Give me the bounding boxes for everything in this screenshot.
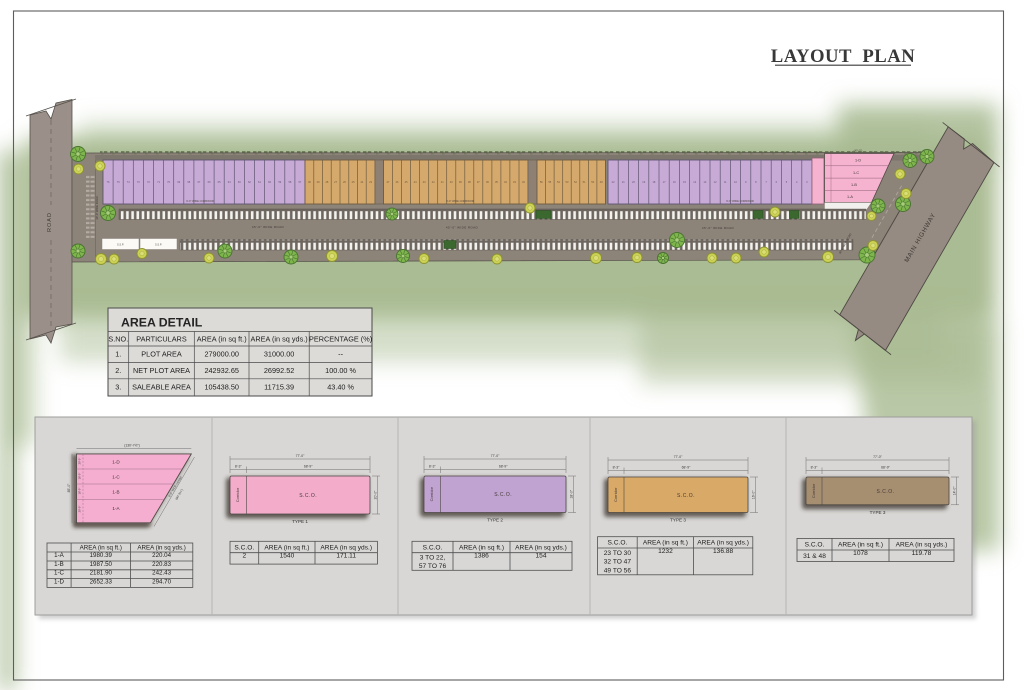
svg-text:--: -- (338, 350, 343, 359)
svg-text:2: 2 (242, 553, 246, 560)
svg-text:1-B: 1-B (112, 490, 119, 495)
svg-text:294.70: 294.70 (152, 578, 171, 585)
svg-text:S.C.O.: S.C.O. (608, 540, 628, 547)
svg-text:8'-3": 8'-3" (811, 466, 819, 470)
svg-text:14'-0": 14'-0" (953, 486, 957, 495)
svg-text:20'-0": 20'-0" (374, 490, 378, 499)
svg-text:S.C.O.: S.C.O. (677, 493, 695, 499)
svg-text:9'-0" WIDE CORRIDOR: 9'-0" WIDE CORRIDOR (186, 199, 214, 203)
svg-text:S.NO.: S.NO. (108, 335, 128, 344)
svg-text:Corridor: Corridor (811, 483, 816, 498)
svg-text:136.88: 136.88 (713, 548, 734, 555)
svg-text:20'-0": 20'-0" (78, 458, 82, 465)
svg-text:242.43: 242.43 (152, 570, 171, 577)
svg-text:16'-0": 16'-0" (78, 488, 82, 495)
svg-text:2181.90: 2181.90 (90, 570, 113, 577)
svg-text:1-A: 1-A (54, 552, 65, 559)
svg-text:1-C: 1-C (54, 570, 65, 577)
svg-text:77'-0": 77'-0" (296, 454, 305, 458)
svg-text:45'-0" WIDE ROAD: 45'-0" WIDE ROAD (702, 226, 735, 230)
svg-text:2652.33: 2652.33 (90, 578, 113, 585)
svg-text:1540: 1540 (280, 553, 295, 560)
svg-text:11715.39: 11715.39 (264, 383, 294, 392)
svg-text:S.C.O.: S.C.O. (494, 492, 512, 498)
svg-text:AREA (in sq yds.): AREA (in sq yds.) (137, 545, 185, 552)
svg-text:1-B: 1-B (851, 183, 857, 187)
svg-text:20'-0": 20'-0" (78, 506, 82, 513)
svg-text:8'-3": 8'-3" (235, 465, 243, 469)
svg-text:S.C.O.: S.C.O. (234, 544, 254, 551)
svg-text:AREA (in sq ft.): AREA (in sq ft.) (838, 542, 883, 549)
svg-text:8'-3": 8'-3" (429, 465, 437, 469)
svg-text:NET PLOT AREA: NET PLOT AREA (133, 366, 190, 375)
svg-text:AREA (in sq yds.): AREA (in sq yds.) (697, 540, 749, 547)
svg-text:2.: 2. (115, 366, 121, 375)
svg-text:1-B: 1-B (54, 561, 64, 568)
svg-text:AREA (in sq ft.): AREA (in sq ft.) (80, 545, 122, 552)
svg-text:105438.50: 105438.50 (204, 383, 239, 392)
svg-text:1980.39: 1980.39 (90, 552, 113, 559)
svg-text:77'-0": 77'-0" (491, 454, 500, 458)
svg-text:S.C.O.: S.C.O. (423, 544, 443, 551)
svg-text:1078: 1078 (853, 550, 868, 557)
svg-text:68'-9": 68'-9" (304, 465, 313, 469)
svg-text:68'-9": 68'-9" (881, 466, 890, 470)
svg-text:1-A: 1-A (847, 195, 853, 199)
svg-text:26992.52: 26992.52 (264, 366, 294, 375)
svg-text:100.00 %: 100.00 % (325, 366, 356, 375)
svg-text:PERCENTAGE (%): PERCENTAGE (%) (309, 335, 372, 344)
svg-text:85'-0": 85'-0" (67, 483, 71, 492)
svg-text:(130'-7½"): (130'-7½") (124, 444, 140, 448)
svg-text:Corridor: Corridor (235, 487, 240, 502)
svg-text:68'-9": 68'-9" (682, 466, 691, 470)
svg-text:S.C.O.: S.C.O. (805, 542, 825, 549)
svg-text:AREA (in sq yds.): AREA (in sq yds.) (896, 542, 948, 549)
svg-text:49 TO 56: 49 TO 56 (604, 568, 632, 575)
svg-text:8'-3": 8'-3" (613, 466, 621, 470)
svg-text:23 TO 30: 23 TO 30 (604, 550, 632, 557)
svg-text:154: 154 (535, 553, 546, 560)
svg-text:57 TO 76: 57 TO 76 (419, 563, 447, 570)
svg-text:16'-0": 16'-0" (78, 473, 82, 480)
svg-text:1-D: 1-D (855, 159, 861, 163)
svg-text:3.: 3. (115, 383, 121, 392)
svg-text:AREA (in sq ft.): AREA (in sq ft.) (643, 540, 688, 547)
svg-text:TYPE 3: TYPE 3 (870, 510, 886, 515)
svg-text:1-D: 1-D (54, 578, 65, 585)
svg-text:9'-0" WIDE CORRIDOR: 9'-0" WIDE CORRIDOR (446, 199, 474, 203)
svg-text:AREA (in sq ft.): AREA (in sq ft.) (459, 544, 504, 551)
svg-text:S.C.O.: S.C.O. (299, 493, 317, 499)
svg-text:77'-0": 77'-0" (873, 455, 882, 459)
svg-text:30'-0" WIDE ROAD: 30'-0" WIDE ROAD (95, 196, 99, 219)
svg-text:43.40 %: 43.40 % (327, 383, 354, 392)
svg-text:171.11: 171.11 (336, 553, 356, 560)
svg-text:S.C.O.: S.C.O. (876, 489, 894, 495)
svg-text:PLOT AREA: PLOT AREA (141, 350, 182, 359)
svg-text:S.S.P.: S.S.P. (155, 243, 162, 247)
svg-text:SALEABLE AREA: SALEABLE AREA (132, 383, 191, 392)
svg-text:PARTICULARS: PARTICULARS (136, 335, 187, 344)
svg-text:TYPE 1: TYPE 1 (292, 519, 308, 524)
svg-text:AREA (in sq ft.): AREA (in sq ft.) (264, 544, 309, 551)
svg-text:220.83: 220.83 (152, 561, 171, 568)
svg-text:1-C: 1-C (853, 171, 859, 175)
svg-text:AREA DETAIL: AREA DETAIL (121, 316, 203, 330)
svg-text:279000.00: 279000.00 (204, 350, 239, 359)
svg-text:AREA (in sq yds.): AREA (in sq yds.) (251, 335, 308, 344)
svg-text:3 TO 22,: 3 TO 22, (420, 554, 446, 561)
svg-text:LAYOUT PLAN: LAYOUT PLAN (771, 46, 915, 67)
svg-text:1.: 1. (115, 350, 121, 359)
svg-text:18'-0": 18'-0" (570, 489, 574, 498)
svg-text:1-D: 1-D (112, 460, 120, 465)
svg-text:31000.00: 31000.00 (264, 350, 294, 359)
svg-text:77'-0": 77'-0" (674, 455, 683, 459)
svg-text:1232: 1232 (658, 548, 673, 555)
svg-text:1-C: 1-C (112, 475, 120, 480)
svg-text:32 TO 47: 32 TO 47 (604, 559, 632, 566)
svg-text:1-A: 1-A (112, 506, 120, 511)
svg-text:1987.50: 1987.50 (90, 561, 113, 568)
svg-text:TYPE 2: TYPE 2 (487, 518, 503, 523)
svg-text:220.04: 220.04 (152, 552, 171, 559)
svg-text:68'-9": 68'-9" (499, 465, 508, 469)
svg-text:AREA (in sq yds.): AREA (in sq yds.) (320, 544, 372, 551)
svg-text:S.S.P.: S.S.P. (117, 243, 124, 247)
svg-text:AREA (in sq ft.): AREA (in sq ft.) (197, 335, 247, 344)
svg-text:45'-0" WIDE ROAD: 45'-0" WIDE ROAD (252, 225, 285, 229)
svg-text:119.78: 119.78 (912, 550, 932, 557)
svg-text:9'-0" WIDE CORRIDOR: 9'-0" WIDE CORRIDOR (726, 199, 754, 203)
svg-text:242932.65: 242932.65 (204, 366, 239, 375)
svg-text:ROAD: ROAD (47, 212, 53, 232)
svg-text:AREA (in sq yds.): AREA (in sq yds.) (515, 544, 567, 551)
svg-text:45'-0" WIDE ROAD: 45'-0" WIDE ROAD (446, 226, 479, 230)
svg-text:(40'-0"): (40'-0") (854, 149, 863, 153)
svg-text:16'-0": 16'-0" (752, 490, 756, 499)
svg-text:31 & 48: 31 & 48 (803, 553, 826, 560)
svg-text:TYPE 3: TYPE 3 (670, 518, 686, 523)
svg-text:Corridor: Corridor (429, 486, 434, 501)
svg-text:1386: 1386 (474, 553, 489, 560)
svg-text:Corridor: Corridor (613, 487, 618, 502)
